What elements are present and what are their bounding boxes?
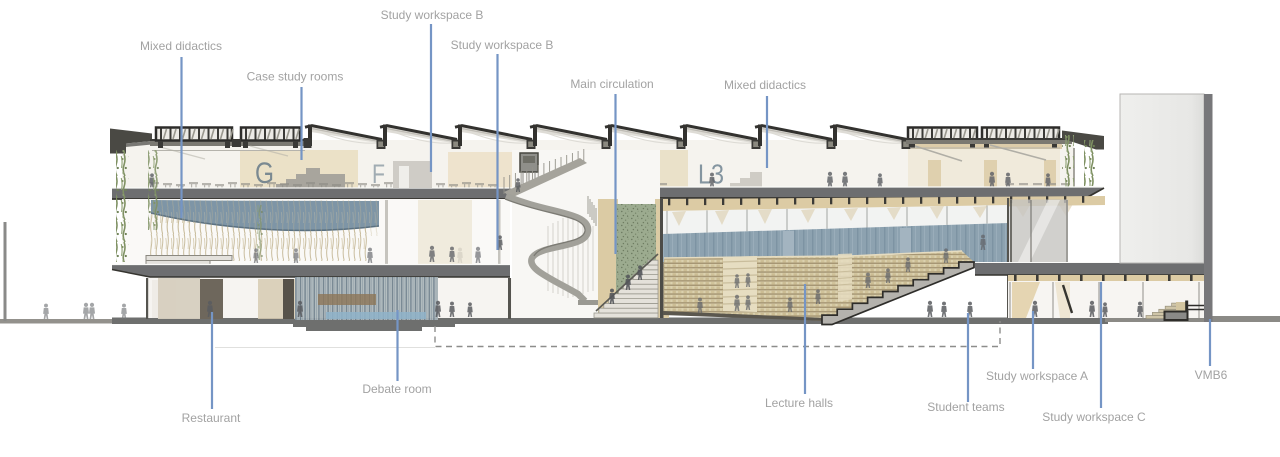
svg-text:VMB6: VMB6: [1195, 368, 1228, 382]
svg-text:Lecture halls: Lecture halls: [765, 396, 833, 410]
svg-text:Study workspace B: Study workspace B: [451, 38, 554, 52]
svg-text:Study workspace C: Study workspace C: [1042, 410, 1146, 424]
svg-text:Student teams: Student teams: [927, 400, 1004, 414]
svg-text:Main circulation: Main circulation: [570, 77, 653, 91]
svg-text:Case study rooms: Case study rooms: [247, 70, 344, 84]
svg-text:Debate room: Debate room: [362, 382, 431, 396]
svg-text:Study workspace B: Study workspace B: [381, 8, 484, 22]
svg-text:Mixed didactics: Mixed didactics: [724, 78, 806, 92]
svg-text:Restaurant: Restaurant: [182, 411, 241, 425]
svg-text:Mixed didactics: Mixed didactics: [140, 39, 222, 53]
svg-text:Study workspace A: Study workspace A: [986, 369, 1088, 383]
